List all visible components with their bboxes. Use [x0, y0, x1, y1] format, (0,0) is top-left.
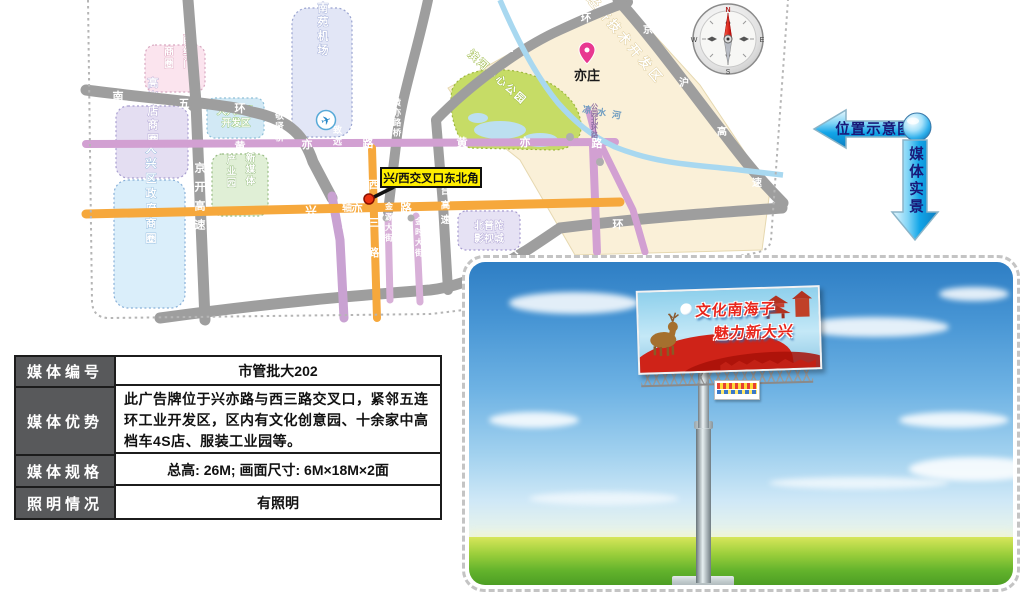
cloud	[909, 457, 1013, 481]
lighting-value: 有照明	[116, 488, 440, 518]
svg-text:黄: 黄	[457, 135, 468, 149]
media-flyer-page: 西红门 商圈 高米店商圈 大兴区政府商圈 南苑机场 大兴工业 开发区 新媒体 产…	[0, 0, 1030, 592]
table-header-media-id: 媒体编号	[16, 357, 116, 388]
site-callout-label: 兴/西交叉口东北角	[383, 171, 478, 185]
cloud	[799, 317, 949, 337]
table-header-media-advantage: 媒体优势	[16, 388, 116, 456]
svg-text:路: 路	[592, 136, 604, 150]
svg-text:敬贤桥: 敬贤桥	[274, 109, 285, 143]
svg-text:高: 高	[717, 125, 727, 138]
svg-text:公园北环路: 公园北环路	[590, 103, 598, 139]
svg-text:环: 环	[235, 102, 246, 115]
cloud	[899, 412, 1009, 428]
svg-text:环: 环	[581, 12, 592, 24]
svg-text:沪: 沪	[679, 76, 689, 89]
secondary-sign	[714, 380, 760, 400]
svg-text:金时大街: 金时大街	[414, 216, 424, 259]
billboard-photo-scene: 文化南海子 魅力新大兴	[469, 262, 1013, 585]
svg-text:西: 西	[369, 179, 380, 191]
billboard-face: 文化南海子 魅力新大兴	[636, 285, 823, 375]
nanyuan-airport-label: 南苑机场	[316, 1, 330, 58]
svg-text:致远西桥: 致远西桥	[332, 124, 343, 171]
table-header-lighting: 照明情况	[16, 488, 116, 518]
svg-text:黄亦路桥: 黄亦路桥	[392, 97, 402, 138]
svg-text:京开高速: 京开高速	[193, 161, 206, 238]
svg-text:产业园: 产业园	[225, 154, 237, 189]
svg-text:商圈: 商圈	[162, 45, 174, 70]
compass-icon: N E S W	[691, 4, 765, 76]
sphere-icon	[903, 113, 931, 141]
svg-text:开发区: 开发区	[222, 117, 251, 129]
cloud	[939, 287, 1009, 301]
svg-text:影视城: 影视城	[474, 232, 504, 245]
media-info-table: 媒体编号 市管批大202 媒体优势 此广告牌位于兴亦路与西三路交叉口，紧邻五连环…	[14, 355, 442, 520]
billboard-slogan-line1: 文化南海子	[695, 297, 797, 321]
svg-text:三: 三	[369, 217, 380, 229]
site-marker-dot-icon	[364, 194, 374, 204]
svg-text:兴: 兴	[305, 204, 317, 218]
svg-text:五: 五	[179, 97, 190, 110]
svg-text:S: S	[726, 69, 731, 76]
svg-text:南中轴路: 南中轴路	[340, 167, 352, 236]
location-map-label: 位置示意图	[835, 120, 913, 138]
svg-text:路: 路	[363, 136, 375, 150]
road-xisan	[372, 148, 377, 318]
park-lake	[474, 121, 526, 139]
svg-text:路: 路	[369, 246, 380, 259]
billboard-photo: 文化南海子 魅力新大兴	[462, 255, 1020, 592]
road-jingkai-expwy	[188, 0, 205, 320]
svg-text:亦: 亦	[520, 135, 531, 149]
yizhuang-label: 亦庄	[574, 68, 600, 83]
svg-text:亦: 亦	[302, 137, 313, 151]
svg-text:W: W	[691, 37, 698, 44]
billboard-pole	[696, 425, 711, 583]
media-id-value: 市管批大202	[116, 357, 440, 386]
grass	[469, 537, 1013, 585]
billboard-logo-icon	[680, 303, 692, 315]
table-header-media-spec: 媒体规格	[16, 456, 116, 488]
svg-text:五: 五	[503, 42, 514, 54]
media-park-label: 新媒体	[244, 152, 257, 187]
cloud	[509, 292, 639, 314]
airplane-icon: ✈	[317, 111, 336, 130]
svg-text:环: 环	[613, 218, 624, 231]
media-advantage-value: 此广告牌位于兴亦路与西三路交叉口，紧邻五连环工业开发区，区内有文化创意园、十余家…	[116, 388, 440, 454]
svg-text:南: 南	[113, 89, 124, 103]
cloud	[489, 412, 579, 428]
svg-text:N: N	[725, 7, 730, 14]
daxing-gov-label: 大兴区政府商圈	[144, 141, 157, 247]
cloud	[529, 492, 679, 505]
svg-text:速: 速	[752, 176, 762, 189]
svg-text:南: 南	[432, 73, 443, 86]
road-huangyi	[86, 142, 615, 144]
media-spec-value: 总高: 26M; 画面尺寸: 6M×18M×2面	[116, 456, 440, 486]
site-callout: 兴/西交叉口东北角	[364, 168, 481, 204]
billboard-slogan: 文化南海子 魅力新大兴	[693, 297, 796, 344]
svg-text:黄: 黄	[235, 139, 246, 153]
gaomidian-label: 高米店商圈	[146, 76, 160, 147]
side-labels: 位置示意图 媒体实景	[800, 100, 1030, 250]
beiputuo-label: 北普陀	[474, 219, 504, 232]
svg-text:路: 路	[400, 201, 412, 215]
media-photo-label: 媒体实景	[907, 146, 923, 216]
svg-text:亦: 亦	[351, 202, 363, 216]
cloud	[769, 477, 949, 489]
billboard-slogan-line2: 魅力新大兴	[713, 320, 795, 344]
svg-text:金源大街: 金源大街	[384, 201, 394, 244]
svg-text:E: E	[760, 37, 765, 44]
svg-text:京: 京	[643, 23, 653, 36]
